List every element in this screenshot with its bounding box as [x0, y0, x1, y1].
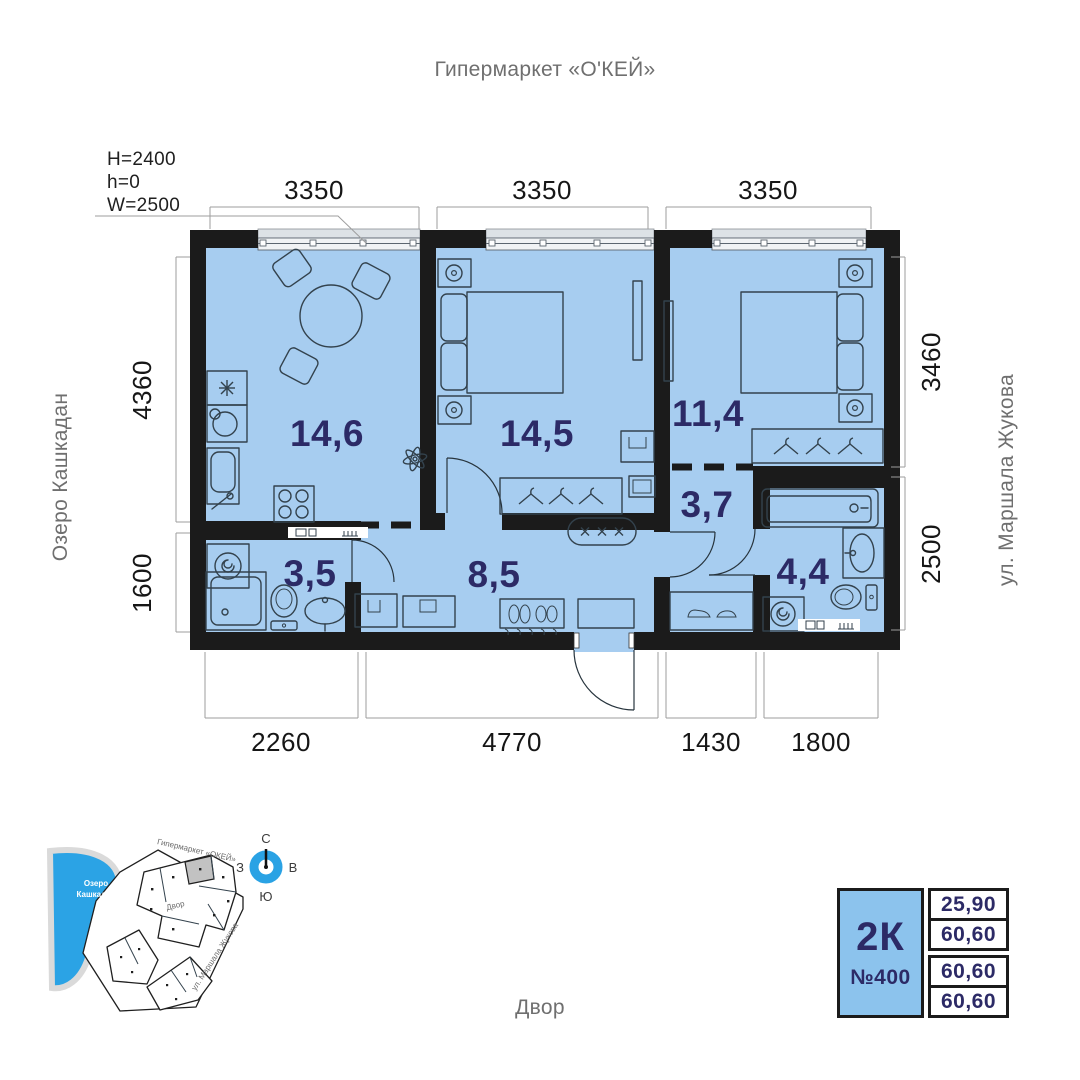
west-surrounding-label: Озеро Кашкадан [49, 393, 72, 561]
towel-rail-icon [288, 527, 368, 538]
apartment-type-cell: 2К №400 [837, 888, 924, 1018]
windows [258, 229, 866, 250]
room-area-corridor: 8,5 [468, 554, 521, 595]
spec-sill: h=0 [107, 172, 140, 193]
north-surrounding-label: Гипермаркет «О'КЕЙ» [434, 57, 655, 81]
spec-width: W=2500 [107, 195, 180, 216]
dim-bottom-1: 2260 [251, 727, 311, 757]
dim-left-1: 4360 [127, 360, 157, 420]
room-area-hallway: 3,7 [681, 484, 734, 525]
window-2 [486, 229, 654, 250]
window-spec: H=2400 h=0 W=2500 [107, 149, 180, 216]
area-value: 25,90 [931, 891, 1006, 918]
site-plan-minimap: Озеро Кашкадан Гипермаркет «ОКЕЙ» ул. Ма… [50, 837, 243, 1011]
area-values-group: 25,90 60,60 [928, 888, 1009, 951]
dim-right-1: 3460 [916, 332, 946, 392]
compass: С Ю З В [236, 831, 297, 904]
room-area-kitchen-living: 14,6 [290, 413, 364, 454]
minimap-lake-label-2: Кашкадан [77, 890, 116, 899]
area-value: 60,60 [931, 958, 1006, 985]
area-value: 60,60 [931, 988, 1006, 1015]
dim-left-2: 1600 [127, 553, 157, 613]
dim-bottom-3: 1430 [681, 727, 741, 757]
east-surrounding-label: ул. Маршала Жукова [995, 374, 1018, 586]
dim-top-2: 3350 [512, 175, 572, 205]
window-1 [258, 229, 420, 250]
apartment-number: №400 [850, 966, 910, 990]
south-surrounding-label: Двор [515, 996, 565, 1019]
compass-north: С [261, 831, 270, 846]
dim-top-1: 3350 [284, 175, 344, 205]
room-area-bathroom-2: 4,4 [777, 551, 830, 592]
dim-right-2: 2500 [916, 524, 946, 584]
apartment-info-card: 2К №400 25,90 60,60 60,60 60,60 [837, 888, 1009, 1018]
spec-height: H=2400 [107, 149, 176, 170]
dim-bottom-4: 1800 [791, 727, 851, 757]
floorplan-page: 3350 3350 3350 4360 1600 3460 2500 2260 … [0, 0, 1080, 1080]
compass-south: Ю [259, 889, 272, 904]
room-area-bathroom-1: 3,5 [284, 553, 337, 594]
towel-rail-icon [798, 619, 860, 631]
apartment-type: 2К [856, 917, 905, 957]
dim-top-3: 3350 [738, 175, 798, 205]
dim-bottom-2: 4770 [482, 727, 542, 757]
window-3 [712, 229, 866, 250]
minimap-lake-label-1: Озеро [84, 879, 108, 888]
compass-east: В [289, 860, 298, 875]
compass-west: З [236, 860, 244, 875]
room-area-bedroom-1: 14,5 [500, 413, 574, 454]
area-value: 60,60 [931, 921, 1006, 948]
room-area-bedroom-2: 11,4 [672, 393, 744, 434]
area-values-group: 60,60 60,60 [928, 955, 1009, 1018]
